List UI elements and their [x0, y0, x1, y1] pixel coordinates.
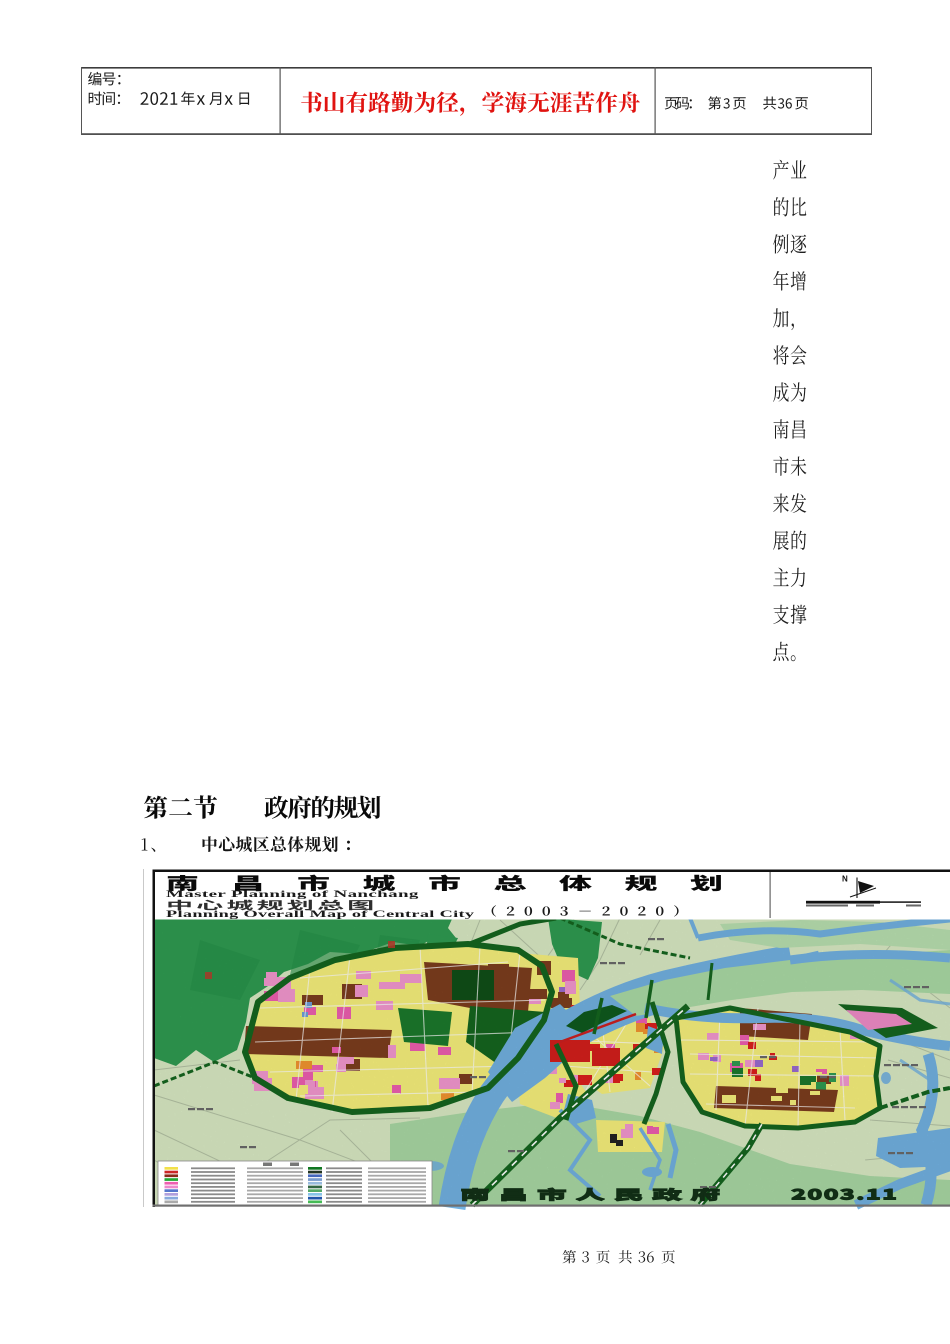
svg-text:Planning Overall Map of Centra: Planning Overall Map of Central City [166, 909, 475, 920]
svg-text:Master Planning of Nanchang: Master Planning of Nanchang [166, 890, 419, 900]
svg-text:N: N [842, 875, 848, 884]
